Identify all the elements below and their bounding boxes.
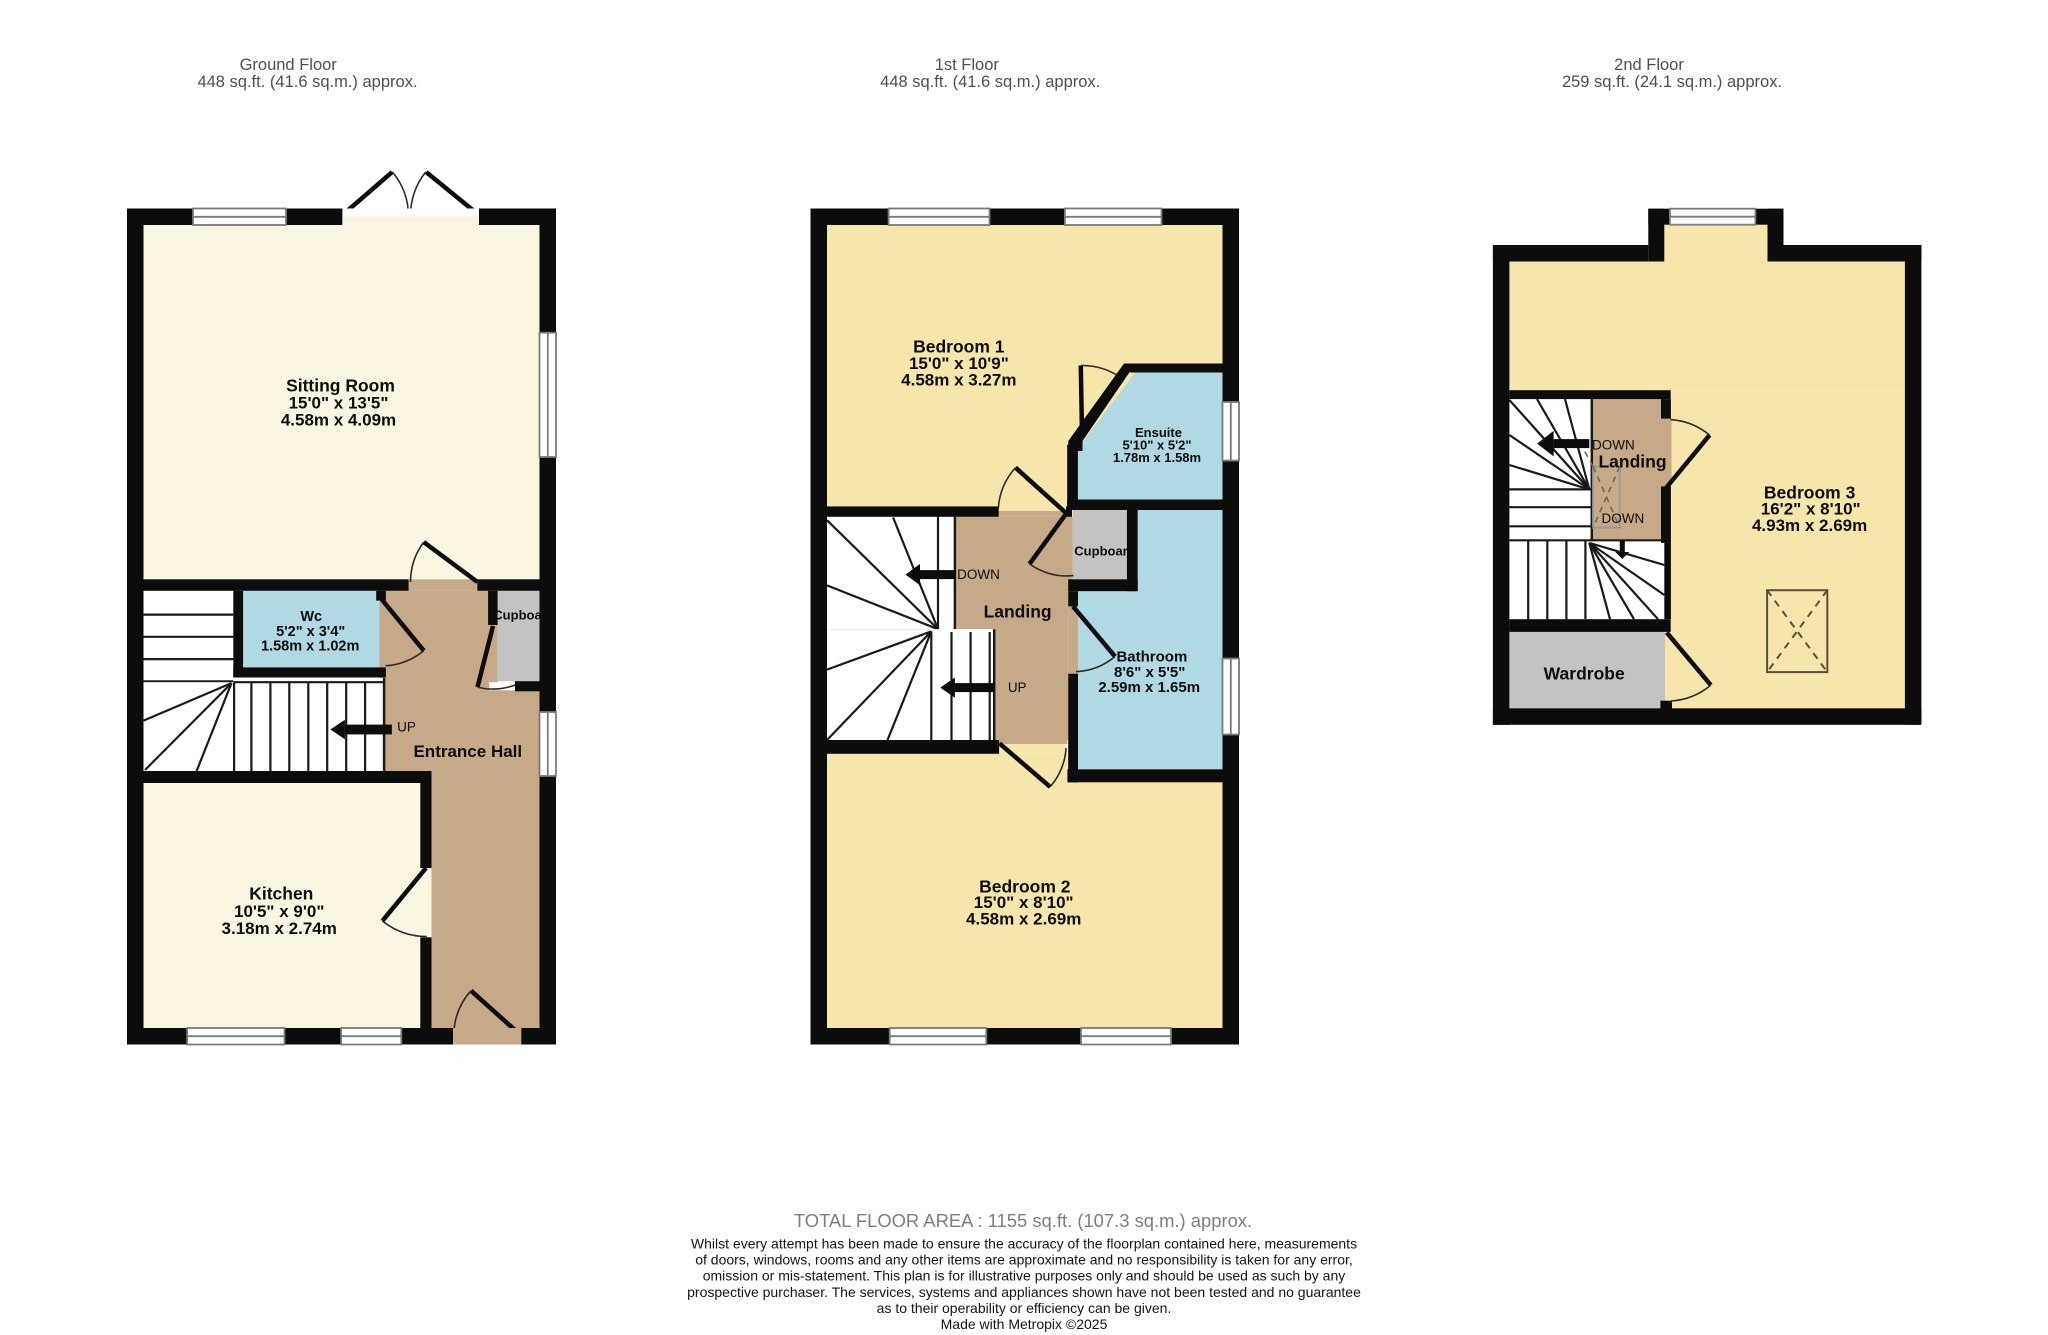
svg-text:UP: UP [1008, 680, 1027, 695]
svg-text:448 sq.ft. (41.6 sq.m.) approx: 448 sq.ft. (41.6 sq.m.) approx. [197, 73, 417, 91]
svg-text:Sitting Room: Sitting Room [286, 376, 395, 396]
svg-text:omission or mis-statement. Thi: omission or mis-statement. This plan is … [703, 1268, 1346, 1284]
svg-text:448 sq.ft. (41.6 sq.m.) approx: 448 sq.ft. (41.6 sq.m.) approx. [880, 73, 1100, 91]
svg-text:Ground Floor: Ground Floor [240, 56, 338, 74]
svg-text:UP: UP [397, 720, 416, 735]
svg-text:Landing: Landing [984, 602, 1052, 622]
svg-text:Entrance Hall: Entrance Hall [413, 742, 522, 761]
svg-text:1st Floor: 1st Floor [935, 56, 1000, 74]
svg-text:4.58m x 3.27m: 4.58m x 3.27m [901, 371, 1016, 390]
svg-text:Landing: Landing [1598, 452, 1666, 472]
svg-text:Cupboard: Cupboard [1074, 544, 1135, 559]
svg-text:2.59m x 1.65m: 2.59m x 1.65m [1098, 679, 1200, 696]
svg-text:Cupboard: Cupboard [493, 608, 554, 623]
svg-text:3.18m x 2.74m: 3.18m x 2.74m [222, 919, 337, 938]
svg-text:Kitchen: Kitchen [249, 884, 313, 904]
svg-text:1.58m x 1.02m: 1.58m x 1.02m [261, 638, 359, 654]
svg-text:DOWN: DOWN [1592, 438, 1635, 453]
svg-text:Wc: Wc [300, 609, 322, 625]
svg-text:4.93m x 2.69m: 4.93m x 2.69m [1752, 516, 1867, 535]
svg-text:2nd Floor: 2nd Floor [1614, 56, 1684, 74]
svg-text:DOWN: DOWN [957, 567, 1000, 582]
svg-text:DOWN: DOWN [1602, 511, 1645, 526]
svg-text:4.58m x 2.69m: 4.58m x 2.69m [966, 910, 1081, 929]
svg-text:Wardrobe: Wardrobe [1544, 664, 1625, 684]
svg-text:Bathroom: Bathroom [1116, 649, 1187, 666]
svg-text:prospective purchaser. The ser: prospective purchaser. The services, sys… [687, 1284, 1361, 1300]
svg-text:Whilst every attempt has been: Whilst every attempt has been made to en… [691, 1236, 1357, 1252]
svg-text:TOTAL FLOOR AREA : 1155 sq.ft.: TOTAL FLOOR AREA : 1155 sq.ft. (107.3 sq… [794, 1210, 1252, 1231]
svg-text:Made with Metropix ©2025: Made with Metropix ©2025 [941, 1316, 1108, 1332]
svg-text:of doors, windows, rooms and a: of doors, windows, rooms and any other i… [695, 1252, 1353, 1268]
svg-text:as to their operability or eff: as to their operability or efficiency ca… [877, 1300, 1172, 1316]
svg-text:259 sq.ft. (24.1 sq.m.) approx: 259 sq.ft. (24.1 sq.m.) approx. [1562, 73, 1782, 91]
svg-text:4.58m x 4.09m: 4.58m x 4.09m [281, 411, 396, 430]
svg-text:1.78m x 1.58m: 1.78m x 1.58m [1113, 450, 1201, 465]
